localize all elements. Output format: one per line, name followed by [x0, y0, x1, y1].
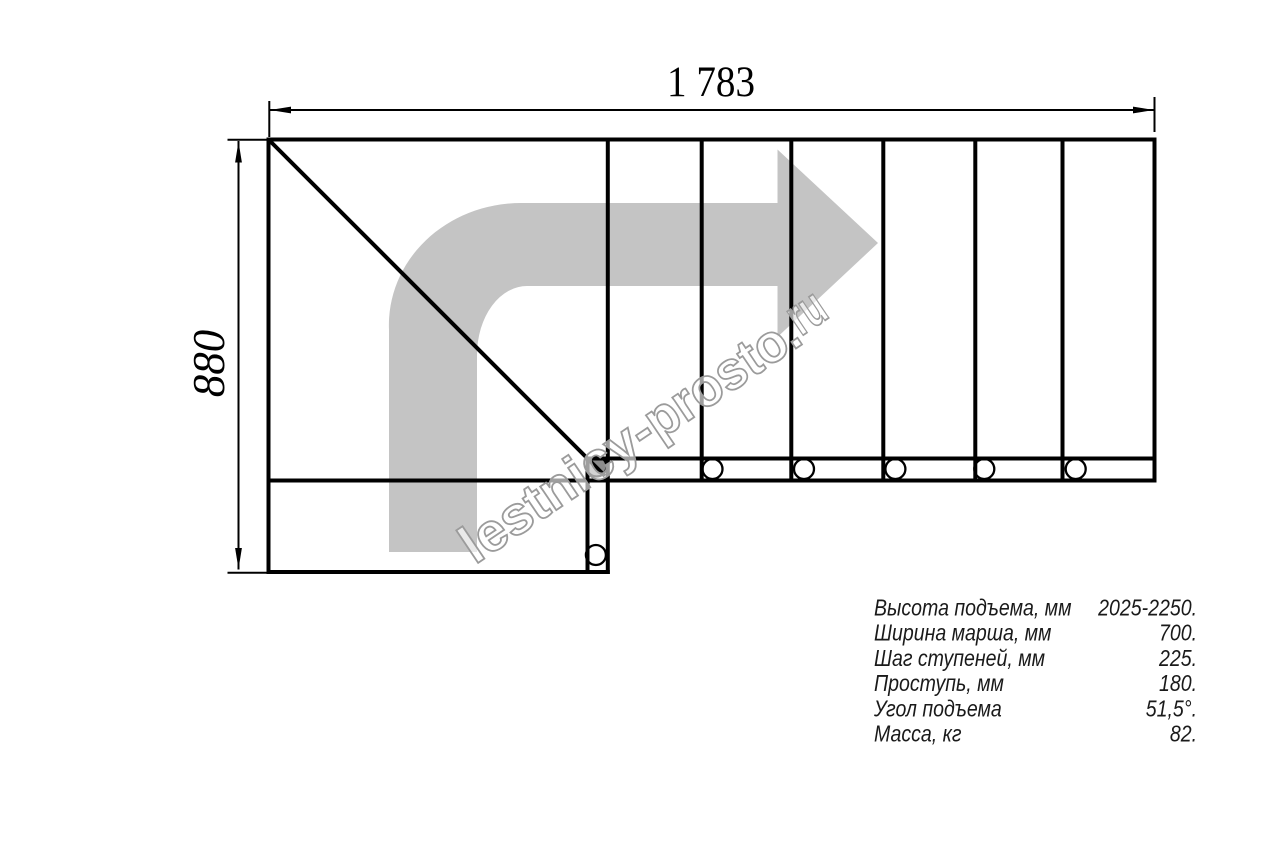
svg-text:180.: 180.: [1159, 671, 1197, 697]
svg-text:51,5°.: 51,5°.: [1146, 696, 1197, 722]
svg-text:Шаг ступеней, мм: Шаг ступеней, мм: [874, 645, 1045, 671]
svg-text:Высота подъема, мм: Высота подъема, мм: [874, 595, 1072, 621]
svg-text:2025-2250.: 2025-2250.: [1097, 595, 1197, 621]
svg-text:225.: 225.: [1158, 645, 1197, 671]
svg-text:Масса, кг: Масса, кг: [874, 721, 962, 747]
svg-text:Угол подъема: Угол подъема: [873, 696, 1002, 722]
svg-text:880: 880: [184, 330, 234, 398]
svg-text:1 783: 1 783: [667, 59, 755, 106]
svg-text:Проступь, мм: Проступь, мм: [874, 671, 1004, 697]
svg-text:82.: 82.: [1170, 721, 1197, 747]
svg-text:Ширина марша, мм: Ширина марша, мм: [874, 620, 1052, 646]
svg-text:700.: 700.: [1159, 620, 1197, 646]
